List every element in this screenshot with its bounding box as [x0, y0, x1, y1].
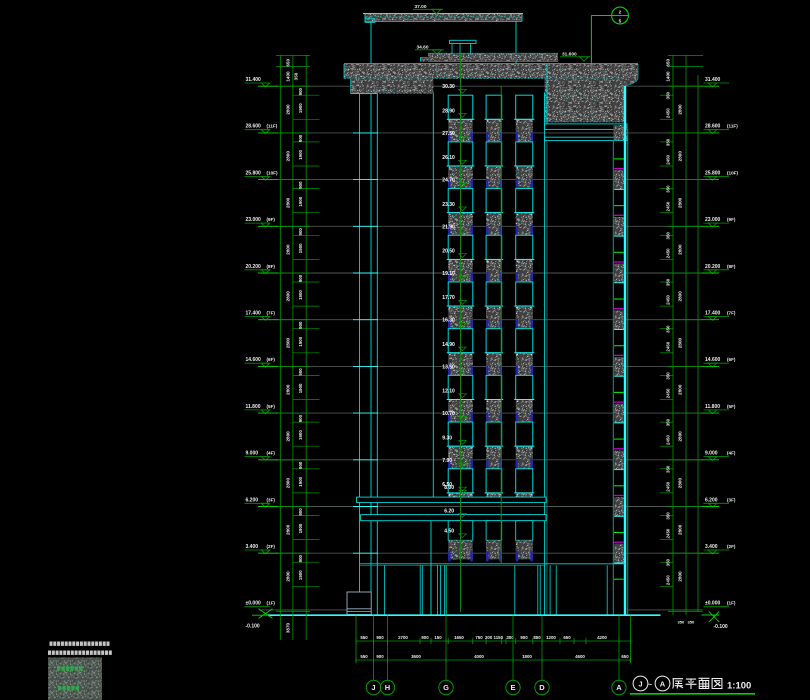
svg-text:2800: 2800: [678, 571, 683, 582]
svg-text:2450: 2450: [666, 295, 671, 305]
svg-text:1800: 1800: [522, 654, 532, 659]
svg-text:2800: 2800: [286, 337, 291, 348]
svg-text:23.30: 23.30: [442, 202, 455, 208]
svg-text:(9F): (9F): [727, 217, 736, 222]
svg-text:10.70: 10.70: [442, 411, 455, 417]
svg-text:(1F): (1F): [267, 601, 276, 606]
svg-text:2450: 2450: [666, 435, 671, 445]
svg-text:1900: 1900: [298, 336, 303, 346]
svg-text:G: G: [443, 683, 449, 692]
svg-text:3600: 3600: [411, 654, 421, 659]
svg-text:5: 5: [619, 19, 622, 25]
svg-text:28.90: 28.90: [442, 108, 455, 114]
svg-text:(11F): (11F): [727, 124, 738, 129]
svg-text:(6F): (6F): [267, 357, 276, 362]
svg-text:900: 900: [298, 181, 303, 189]
svg-text:11.800: 11.800: [705, 404, 720, 410]
svg-text:-0.100: -0.100: [714, 624, 728, 630]
svg-text:23.000: 23.000: [705, 217, 721, 223]
svg-text:350: 350: [666, 278, 671, 286]
svg-text:650: 650: [286, 59, 291, 67]
svg-text:7.90: 7.90: [442, 458, 452, 464]
svg-text:2450: 2450: [666, 528, 671, 538]
svg-text:31.400: 31.400: [246, 77, 262, 83]
svg-text:2800: 2800: [678, 197, 683, 208]
svg-text:(4F): (4F): [267, 451, 276, 456]
svg-text:6.200: 6.200: [246, 497, 259, 503]
svg-text:26.10: 26.10: [442, 155, 455, 161]
svg-text:25.800: 25.800: [705, 170, 721, 176]
svg-text:(2F): (2F): [727, 544, 736, 549]
svg-text:H: H: [385, 683, 390, 692]
svg-text:2800: 2800: [286, 524, 291, 535]
svg-text:2800: 2800: [678, 151, 683, 162]
svg-text:2800: 2800: [286, 104, 291, 115]
svg-text:9.000: 9.000: [705, 451, 718, 457]
svg-text:19.10: 19.10: [442, 271, 455, 277]
svg-text:350: 350: [666, 512, 671, 520]
svg-text:150: 150: [434, 635, 442, 640]
svg-text:900: 900: [298, 134, 303, 142]
svg-text:A: A: [660, 679, 666, 688]
svg-text:900: 900: [298, 554, 303, 562]
svg-text:(8F): (8F): [267, 264, 276, 269]
svg-text:2450: 2450: [666, 201, 671, 211]
svg-text:4.50: 4.50: [444, 529, 454, 535]
svg-text:30.30: 30.30: [442, 84, 455, 90]
svg-text:2800: 2800: [678, 291, 683, 302]
svg-text:2450: 2450: [666, 575, 671, 585]
svg-text:900: 900: [298, 368, 303, 376]
svg-text:350: 350: [666, 185, 671, 193]
svg-text:4200: 4200: [597, 635, 607, 640]
svg-text:3.400: 3.400: [246, 544, 259, 550]
svg-text:20.200: 20.200: [705, 264, 721, 270]
svg-text:1900: 1900: [298, 290, 303, 300]
svg-text:(10F): (10F): [727, 170, 738, 175]
svg-text:1900: 1900: [298, 523, 303, 533]
svg-text:2800: 2800: [678, 384, 683, 395]
svg-text:4000: 4000: [474, 654, 484, 659]
svg-text:(1F): (1F): [727, 601, 736, 606]
svg-text:4600: 4600: [575, 654, 585, 659]
svg-text:±0.000: ±0.000: [705, 601, 720, 607]
svg-text:12.10: 12.10: [442, 389, 455, 395]
svg-text:1200: 1200: [546, 635, 556, 640]
svg-text:(5F): (5F): [727, 404, 736, 409]
svg-text:8.00: 8.00: [444, 485, 454, 491]
svg-text:650: 650: [563, 635, 571, 640]
svg-text:2800: 2800: [286, 244, 291, 255]
svg-text:20.200: 20.200: [246, 264, 262, 270]
svg-text:14.90: 14.90: [442, 342, 455, 348]
svg-text:6.200: 6.200: [705, 497, 718, 503]
svg-text:1400: 1400: [666, 71, 671, 82]
svg-text:2800: 2800: [678, 431, 683, 442]
svg-text:(6F): (6F): [727, 357, 736, 362]
svg-text:2800: 2800: [678, 478, 683, 489]
svg-text:J: J: [638, 679, 642, 688]
svg-text:14.600: 14.600: [246, 357, 262, 363]
svg-text:2450: 2450: [666, 341, 671, 351]
svg-text:2800: 2800: [286, 384, 291, 395]
svg-text:350: 350: [294, 72, 299, 80]
svg-text:(2F): (2F): [267, 544, 276, 549]
svg-text:14.600: 14.600: [705, 357, 721, 363]
svg-text:650: 650: [621, 654, 629, 659]
svg-text:2450: 2450: [666, 481, 671, 491]
svg-text:550: 550: [360, 654, 368, 659]
svg-text:2450: 2450: [666, 154, 671, 164]
svg-text:350: 350: [666, 138, 671, 146]
svg-text:2800: 2800: [678, 337, 683, 348]
svg-text:350: 350: [688, 620, 695, 625]
svg-text:~: ~: [648, 682, 652, 689]
svg-text:900: 900: [298, 508, 303, 516]
svg-text:2800: 2800: [286, 478, 291, 489]
svg-text:900: 900: [520, 635, 528, 640]
svg-text:9.000: 9.000: [246, 451, 259, 457]
svg-text:350: 350: [666, 372, 671, 380]
svg-text:(10F): (10F): [267, 170, 278, 175]
svg-text:200 1150: 200 1150: [485, 635, 504, 640]
svg-text:31.400: 31.400: [705, 77, 721, 83]
svg-text:350: 350: [666, 465, 671, 473]
svg-text:650: 650: [666, 59, 671, 67]
svg-text:900: 900: [298, 228, 303, 236]
svg-text:3870: 3870: [286, 622, 291, 633]
svg-text:1900: 1900: [298, 570, 303, 580]
svg-text:(7F): (7F): [267, 311, 276, 316]
svg-text:1:100: 1:100: [727, 681, 751, 692]
svg-text:550: 550: [360, 635, 368, 640]
svg-text:900: 900: [298, 461, 303, 469]
svg-text:2800: 2800: [678, 104, 683, 115]
svg-text:900: 900: [298, 274, 303, 282]
svg-text:(7F): (7F): [727, 311, 736, 316]
svg-text:2800: 2800: [286, 291, 291, 302]
svg-text:(8F): (8F): [727, 264, 736, 269]
svg-text:3.400: 3.400: [705, 544, 718, 550]
svg-text:(3F): (3F): [267, 497, 276, 502]
svg-text:25.800: 25.800: [246, 170, 262, 176]
svg-text:1900: 1900: [298, 103, 303, 113]
svg-text:1650: 1650: [454, 635, 464, 640]
svg-text:2450: 2450: [666, 108, 671, 118]
svg-text:D: D: [539, 683, 545, 692]
svg-text:2800: 2800: [286, 571, 291, 582]
svg-text:(3F): (3F): [727, 497, 736, 502]
svg-text:27.50: 27.50: [442, 131, 455, 137]
svg-text:(4F): (4F): [727, 451, 736, 456]
svg-text:350: 350: [666, 558, 671, 566]
svg-text:350: 350: [666, 325, 671, 333]
svg-text:(5F): (5F): [267, 404, 276, 409]
svg-text:16.30: 16.30: [442, 318, 455, 324]
svg-text:6.20: 6.20: [444, 508, 454, 514]
svg-text:A: A: [616, 683, 622, 692]
svg-text:900: 900: [298, 321, 303, 329]
svg-text:900: 900: [376, 654, 384, 659]
svg-text:20.50: 20.50: [442, 249, 455, 255]
svg-text:1900: 1900: [298, 430, 303, 440]
svg-text:28.600: 28.600: [246, 124, 262, 130]
svg-text:E: E: [510, 683, 515, 692]
svg-text:350: 350: [666, 418, 671, 426]
svg-text:850: 850: [533, 635, 541, 640]
svg-text:1900: 1900: [298, 196, 303, 206]
svg-text:2800: 2800: [286, 431, 291, 442]
svg-text:±0.000: ±0.000: [246, 601, 261, 607]
svg-text:9.30: 9.30: [442, 435, 452, 441]
svg-text:21.90: 21.90: [442, 224, 455, 230]
svg-text:24.70: 24.70: [442, 178, 455, 184]
svg-text:2800: 2800: [678, 524, 683, 535]
svg-text:1900: 1900: [298, 476, 303, 486]
svg-text:28.600: 28.600: [705, 124, 721, 130]
svg-text:350: 350: [666, 232, 671, 240]
svg-text:2: 2: [619, 10, 622, 16]
svg-text:17.70: 17.70: [442, 295, 455, 301]
svg-text:13.50: 13.50: [442, 364, 455, 370]
svg-text:2800: 2800: [286, 151, 291, 162]
svg-text:2700: 2700: [398, 635, 408, 640]
svg-text:1900: 1900: [298, 149, 303, 159]
svg-text:900: 900: [298, 87, 303, 95]
svg-text:J: J: [371, 683, 375, 692]
svg-text:350: 350: [666, 91, 671, 99]
svg-text:(9F): (9F): [267, 217, 276, 222]
svg-text:11.800: 11.800: [246, 404, 261, 410]
svg-text:23.000: 23.000: [246, 217, 262, 223]
svg-text:2800: 2800: [286, 197, 291, 208]
svg-text:17.400: 17.400: [246, 311, 262, 317]
svg-text:900: 900: [298, 414, 303, 422]
svg-text:-0.100: -0.100: [246, 624, 260, 630]
svg-text:(11F): (11F): [267, 124, 278, 129]
svg-text:1400: 1400: [286, 71, 291, 82]
svg-text:1900: 1900: [298, 243, 303, 253]
svg-text:2800: 2800: [678, 244, 683, 255]
svg-text:2450: 2450: [666, 248, 671, 258]
svg-text:350: 350: [678, 620, 685, 625]
svg-text:900: 900: [421, 635, 429, 640]
svg-text:17.400: 17.400: [705, 311, 721, 317]
svg-text:900: 900: [376, 635, 384, 640]
svg-text:2450: 2450: [666, 388, 671, 398]
svg-text:1900: 1900: [298, 383, 303, 393]
svg-text:750: 750: [475, 635, 483, 640]
